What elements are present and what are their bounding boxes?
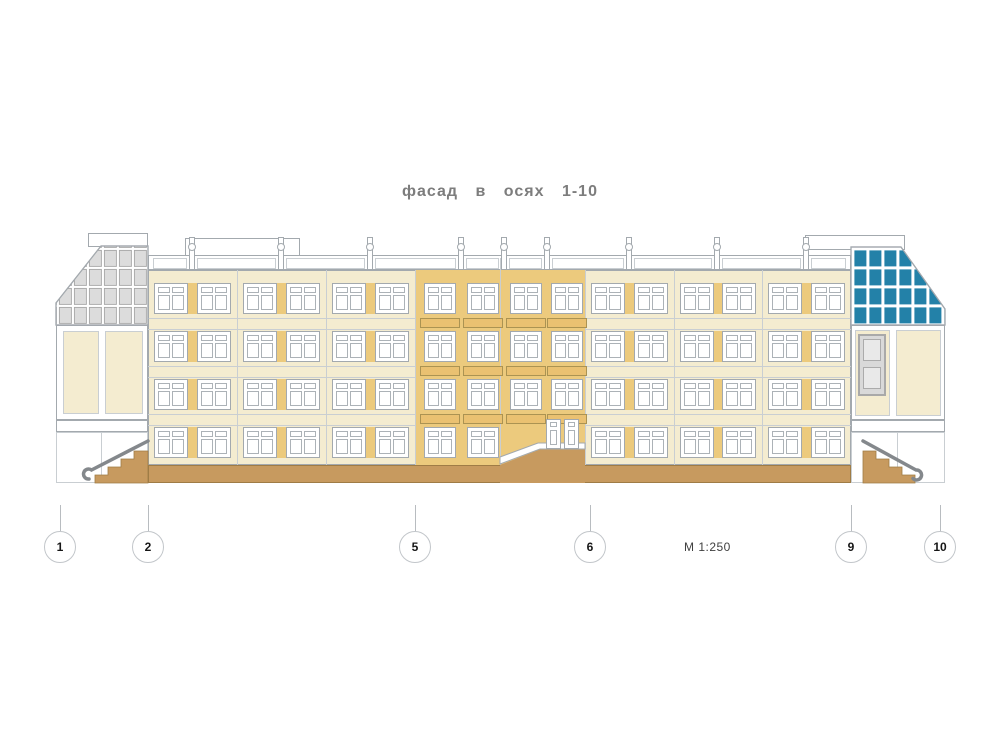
window-pane	[726, 295, 738, 310]
window-pane	[609, 391, 621, 406]
window-pane	[740, 439, 752, 454]
window-pane	[215, 335, 227, 341]
window-pane	[829, 391, 841, 406]
entrance-door-glass	[568, 430, 575, 445]
window-pane	[698, 439, 710, 454]
window-pane	[555, 391, 566, 406]
window-pane	[740, 431, 752, 437]
window-pane	[215, 391, 227, 406]
window-pane	[638, 431, 650, 437]
window-pane	[555, 295, 566, 310]
axis-line	[940, 505, 941, 531]
center-window-unit	[467, 379, 499, 410]
window-pane	[215, 439, 227, 454]
window-pane	[726, 343, 738, 358]
window-pane	[786, 391, 798, 406]
window-pane	[471, 431, 482, 437]
axis-number: 6	[587, 540, 594, 554]
window-pane	[595, 431, 607, 437]
window-unit	[591, 379, 625, 410]
window-pane	[815, 391, 827, 406]
window-pane	[471, 343, 482, 358]
window-pane	[201, 343, 213, 358]
window-pane	[290, 431, 302, 437]
window-pane	[652, 343, 664, 358]
window-pane	[393, 391, 405, 406]
window-pane	[290, 343, 302, 358]
window-pane	[595, 439, 607, 454]
window-pane	[698, 295, 710, 310]
window-pane	[441, 391, 452, 406]
window-pane	[652, 335, 664, 341]
window-pane	[786, 287, 798, 293]
window-pane	[772, 295, 784, 310]
window-pane	[595, 391, 607, 406]
window-pane	[815, 431, 827, 437]
window-pane	[568, 391, 579, 406]
center-window-unit	[424, 283, 456, 314]
window-pane	[261, 431, 273, 437]
window-pane	[471, 383, 482, 389]
window-pane	[527, 295, 538, 310]
window-pane	[740, 383, 752, 389]
window-unit	[243, 331, 277, 362]
window-pane	[652, 431, 664, 437]
window-unit	[154, 427, 188, 458]
window-pane	[336, 295, 348, 310]
window-pane	[290, 335, 302, 341]
window-pane	[684, 383, 696, 389]
window-pane	[215, 383, 227, 389]
axis-number: 5	[412, 540, 419, 554]
window-pane	[304, 295, 316, 310]
window-pane	[815, 335, 827, 341]
window-pane	[304, 431, 316, 437]
window-pane	[261, 287, 273, 293]
window-pane	[555, 383, 566, 389]
window-pane	[172, 439, 184, 454]
window-pane	[698, 343, 710, 358]
window-unit	[332, 331, 366, 362]
window-pane	[684, 439, 696, 454]
window-pane	[471, 391, 482, 406]
window-pane	[158, 295, 170, 310]
window-pane	[555, 343, 566, 358]
window-pane	[726, 383, 738, 389]
window-pane	[829, 439, 841, 454]
window-pane	[441, 383, 452, 389]
window-pane	[609, 335, 621, 341]
window-pane	[304, 335, 316, 341]
window-pane	[740, 343, 752, 358]
window-pane	[786, 383, 798, 389]
axis-line	[590, 505, 591, 531]
drawing-sheet: фасад в осях 1-10 1256910 М 1:250	[0, 0, 1000, 745]
window-pane	[247, 287, 259, 293]
center-window-unit	[510, 283, 542, 314]
window-unit	[332, 427, 366, 458]
window-pane	[350, 383, 362, 389]
window-pane	[484, 295, 495, 310]
window-pane	[172, 335, 184, 341]
window-pane	[428, 383, 439, 389]
window-pane	[201, 431, 213, 437]
window-pane	[336, 383, 348, 389]
window-pane	[786, 439, 798, 454]
window-pane	[336, 335, 348, 341]
window-pane	[726, 439, 738, 454]
window-unit	[375, 379, 409, 410]
axis-line	[60, 505, 61, 531]
window-pane	[568, 343, 579, 358]
window-pane	[595, 295, 607, 310]
window-pane	[815, 383, 827, 389]
window-pane	[379, 439, 391, 454]
window-pane	[201, 335, 213, 341]
window-pane	[815, 295, 827, 310]
entrance-door	[564, 419, 579, 449]
window-pane	[393, 383, 405, 389]
scale-label: М 1:250	[684, 540, 731, 554]
window-pane	[484, 383, 495, 389]
window-pane	[829, 295, 841, 310]
window-pane	[471, 295, 482, 310]
window-unit	[680, 427, 714, 458]
window-pane	[172, 431, 184, 437]
window-pane	[772, 391, 784, 406]
window-pane	[652, 295, 664, 310]
window-pane	[428, 295, 439, 310]
window-pane	[172, 343, 184, 358]
window-pane	[158, 383, 170, 389]
window-unit	[243, 283, 277, 314]
window-pane	[638, 391, 650, 406]
window-unit	[154, 379, 188, 410]
window-pane	[555, 335, 566, 341]
window-pane	[829, 287, 841, 293]
window-pane	[379, 287, 391, 293]
window-pane	[514, 295, 525, 310]
window-pane	[527, 287, 538, 293]
window-pane	[527, 383, 538, 389]
window-unit	[197, 283, 231, 314]
window-pane	[772, 383, 784, 389]
axis-circle: 10	[924, 531, 956, 563]
window-pane	[638, 287, 650, 293]
center-window-unit	[467, 427, 499, 458]
window-pane	[684, 287, 696, 293]
window-pane	[428, 439, 439, 454]
window-pane	[261, 295, 273, 310]
window-pane	[652, 391, 664, 406]
window-pane	[304, 343, 316, 358]
window-pane	[336, 439, 348, 454]
window-unit	[591, 331, 625, 362]
window-pane	[441, 439, 452, 454]
window-pane	[815, 439, 827, 454]
window-pane	[247, 439, 259, 454]
window-pane	[471, 287, 482, 293]
window-pane	[441, 431, 452, 437]
window-unit	[811, 427, 845, 458]
window-unit	[722, 379, 756, 410]
window-unit	[680, 379, 714, 410]
window-pane	[638, 335, 650, 341]
axis-line	[148, 505, 149, 531]
window-unit	[634, 283, 668, 314]
window-pane	[471, 335, 482, 341]
window-pane	[568, 295, 579, 310]
axis-number: 9	[848, 540, 855, 554]
window-unit	[722, 331, 756, 362]
window-pane	[350, 343, 362, 358]
window-pane	[158, 343, 170, 358]
window-unit	[375, 283, 409, 314]
window-pane	[201, 383, 213, 389]
center-window-unit	[467, 331, 499, 362]
window-pane	[247, 391, 259, 406]
window-pane	[393, 295, 405, 310]
window-pane	[441, 343, 452, 358]
window-unit	[197, 427, 231, 458]
window-pane	[527, 335, 538, 341]
window-unit	[332, 379, 366, 410]
axis-number: 10	[933, 540, 946, 554]
window-unit	[768, 331, 802, 362]
window-unit	[286, 379, 320, 410]
window-pane	[201, 287, 213, 293]
window-pane	[215, 287, 227, 293]
window-pane	[247, 343, 259, 358]
axis-number: 1	[57, 540, 64, 554]
window-pane	[638, 439, 650, 454]
window-pane	[786, 335, 798, 341]
window-pane	[215, 343, 227, 358]
window-pane	[261, 335, 273, 341]
window-unit	[591, 283, 625, 314]
window-pane	[484, 431, 495, 437]
window-unit	[375, 427, 409, 458]
window-unit	[680, 283, 714, 314]
window-pane	[350, 431, 362, 437]
window-pane	[829, 343, 841, 358]
window-pane	[786, 431, 798, 437]
window-unit	[634, 427, 668, 458]
window-pane	[172, 295, 184, 310]
window-pane	[290, 287, 302, 293]
window-pane	[441, 335, 452, 341]
window-pane	[698, 383, 710, 389]
entrance-door-glass	[550, 430, 557, 445]
window-unit	[722, 427, 756, 458]
window-unit	[768, 283, 802, 314]
axis-circle: 1	[44, 531, 76, 563]
window-pane	[379, 383, 391, 389]
window-pane	[652, 287, 664, 293]
window-pane	[568, 287, 579, 293]
window-pane	[514, 383, 525, 389]
window-unit	[286, 283, 320, 314]
window-pane	[698, 431, 710, 437]
window-pane	[740, 295, 752, 310]
window-pane	[514, 287, 525, 293]
window-pane	[595, 287, 607, 293]
window-unit	[811, 283, 845, 314]
window-pane	[568, 383, 579, 389]
window-pane	[350, 439, 362, 454]
window-pane	[471, 439, 482, 454]
window-pane	[484, 335, 495, 341]
window-pane	[393, 335, 405, 341]
window-unit	[722, 283, 756, 314]
window-pane	[815, 287, 827, 293]
window-pane	[247, 335, 259, 341]
window-pane	[829, 383, 841, 389]
window-pane	[595, 383, 607, 389]
window-unit	[634, 331, 668, 362]
window-unit	[197, 331, 231, 362]
window-pane	[393, 431, 405, 437]
window-pane	[772, 343, 784, 358]
window-pane	[290, 383, 302, 389]
window-pane	[726, 431, 738, 437]
window-pane	[514, 391, 525, 406]
window-pane	[638, 383, 650, 389]
window-pane	[379, 295, 391, 310]
axis-number: 2	[145, 540, 152, 554]
window-pane	[336, 431, 348, 437]
window-pane	[786, 295, 798, 310]
window-pane	[829, 431, 841, 437]
center-window-unit	[551, 379, 583, 410]
center-window-unit	[510, 379, 542, 410]
window-unit	[634, 379, 668, 410]
window-pane	[428, 431, 439, 437]
window-pane	[158, 287, 170, 293]
window-pane	[393, 287, 405, 293]
window-pane	[726, 391, 738, 406]
window-pane	[786, 343, 798, 358]
window-pane	[638, 343, 650, 358]
window-unit	[680, 331, 714, 362]
window-pane	[740, 335, 752, 341]
center-window-unit	[424, 379, 456, 410]
entrance-door-transom	[550, 422, 557, 427]
window-pane	[247, 431, 259, 437]
window-pane	[726, 287, 738, 293]
window-pane	[393, 343, 405, 358]
window-pane	[484, 439, 495, 454]
window-pane	[201, 439, 213, 454]
window-pane	[555, 287, 566, 293]
window-pane	[336, 391, 348, 406]
window-unit	[768, 379, 802, 410]
window-pane	[350, 335, 362, 341]
window-pane	[350, 287, 362, 293]
window-unit	[243, 427, 277, 458]
window-pane	[595, 335, 607, 341]
window-unit	[375, 331, 409, 362]
window-pane	[484, 343, 495, 358]
window-pane	[350, 391, 362, 406]
window-unit	[154, 283, 188, 314]
window-pane	[609, 295, 621, 310]
window-pane	[609, 343, 621, 358]
center-window-unit	[510, 331, 542, 362]
window-pane	[527, 343, 538, 358]
window-pane	[379, 391, 391, 406]
window-pane	[304, 439, 316, 454]
window-pane	[441, 287, 452, 293]
window-pane	[158, 439, 170, 454]
window-pane	[484, 287, 495, 293]
axis-line	[415, 505, 416, 531]
window-pane	[595, 343, 607, 358]
window-pane	[261, 383, 273, 389]
window-pane	[527, 391, 538, 406]
axis-line	[851, 505, 852, 531]
window-pane	[261, 343, 273, 358]
window-pane	[684, 431, 696, 437]
window-pane	[393, 439, 405, 454]
window-pane	[772, 439, 784, 454]
window-pane	[772, 287, 784, 293]
window-unit	[286, 427, 320, 458]
window-unit	[332, 283, 366, 314]
window-unit	[811, 379, 845, 410]
window-pane	[740, 391, 752, 406]
window-pane	[726, 335, 738, 341]
window-pane	[652, 383, 664, 389]
window-unit	[768, 427, 802, 458]
window-pane	[428, 287, 439, 293]
window-pane	[698, 391, 710, 406]
window-pane	[609, 439, 621, 454]
window-unit	[154, 331, 188, 362]
window-pane	[304, 383, 316, 389]
window-pane	[428, 335, 439, 341]
window-pane	[158, 335, 170, 341]
window-pane	[772, 335, 784, 341]
window-pane	[568, 335, 579, 341]
window-pane	[652, 439, 664, 454]
center-window-unit	[551, 331, 583, 362]
window-pane	[484, 391, 495, 406]
window-pane	[336, 287, 348, 293]
axis-circle: 2	[132, 531, 164, 563]
entrance-door	[546, 419, 561, 449]
window-pane	[684, 343, 696, 358]
center-window-unit	[467, 283, 499, 314]
window-pane	[247, 295, 259, 310]
window-pane	[158, 391, 170, 406]
axis-circle: 6	[574, 531, 606, 563]
window-pane	[304, 287, 316, 293]
window-pane	[172, 383, 184, 389]
window-pane	[379, 335, 391, 341]
window-pane	[609, 431, 621, 437]
window-unit	[591, 427, 625, 458]
window-pane	[215, 431, 227, 437]
window-pane	[158, 431, 170, 437]
window-pane	[514, 335, 525, 341]
window-pane	[290, 295, 302, 310]
window-pane	[304, 391, 316, 406]
window-pane	[684, 295, 696, 310]
window-pane	[261, 439, 273, 454]
window-pane	[247, 383, 259, 389]
window-pane	[740, 287, 752, 293]
